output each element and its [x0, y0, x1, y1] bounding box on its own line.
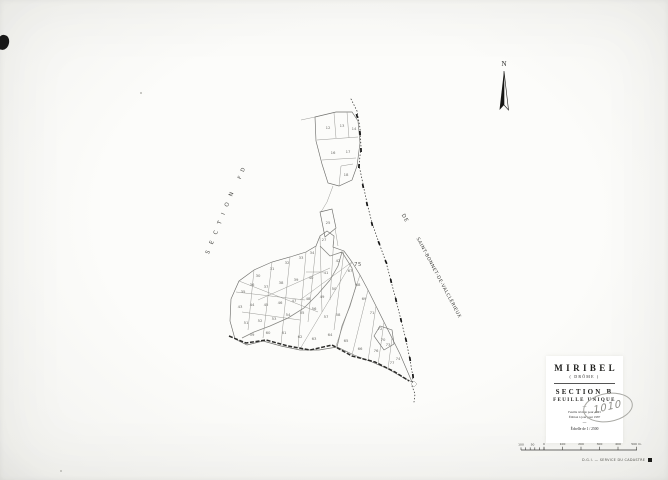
svg-text:49: 49 [320, 294, 325, 299]
svg-text:38: 38 [279, 280, 284, 285]
svg-text:34: 34 [310, 250, 315, 255]
svg-text:41: 41 [324, 270, 329, 275]
svg-text:48: 48 [306, 296, 311, 301]
svg-text:55: 55 [300, 310, 305, 315]
svg-text:43: 43 [238, 304, 243, 309]
svg-text:66: 66 [358, 346, 363, 351]
svg-text:14: 14 [352, 126, 357, 131]
north-label: N [501, 60, 506, 68]
svg-text:31: 31 [270, 266, 275, 271]
svg-text:59: 59 [250, 332, 255, 337]
svg-text:50: 50 [531, 443, 535, 447]
svg-text:25: 25 [326, 220, 331, 225]
parcel-geometry: 1213141617182527303132333435363738394041… [229, 99, 417, 402]
svg-text:36: 36 [250, 282, 255, 287]
north-arrow-icon [500, 71, 505, 110]
scale-note: Échelle de 1 / 2500 [546, 427, 623, 431]
svg-text:62: 62 [298, 334, 303, 339]
svg-text:33: 33 [299, 255, 304, 260]
handwritten-number: 1010 [593, 399, 623, 417]
cadastral-map-sheet: N 12131416171825273031323334353637383940… [0, 0, 668, 480]
svg-text:52: 52 [258, 318, 263, 323]
svg-text:17: 17 [346, 149, 351, 154]
print-credit-line: D.G.I. — SERVICE DU CADASTRE [582, 458, 652, 462]
svg-text:58: 58 [336, 312, 341, 317]
svg-text:12: 12 [326, 125, 331, 130]
svg-text:67: 67 [348, 268, 353, 273]
commune-name: MIRIBEL [546, 363, 623, 373]
svg-text:45: 45 [264, 302, 269, 307]
svg-text:56: 56 [312, 306, 317, 311]
svg-text:77: 77 [390, 360, 395, 365]
svg-text:70: 70 [381, 337, 386, 342]
svg-text:18: 18 [344, 172, 349, 177]
svg-text:44: 44 [250, 302, 255, 307]
svg-text:42: 42 [336, 258, 341, 263]
svg-text:100: 100 [518, 443, 524, 447]
print-credit-text: D.G.I. — SERVICE DU CADASTRE [582, 458, 645, 462]
svg-text:27: 27 [322, 237, 327, 242]
north-arrow: N [500, 60, 509, 110]
svg-text:51: 51 [244, 320, 249, 325]
svg-text:74: 74 [396, 356, 401, 361]
department-name: ( DRÔME ) [546, 374, 623, 379]
svg-text:500 m.: 500 m. [631, 442, 642, 446]
svg-text:57: 57 [324, 314, 329, 319]
svg-text:53: 53 [272, 316, 277, 321]
svg-text:46: 46 [278, 300, 283, 305]
divider [554, 383, 615, 384]
svg-text:13: 13 [340, 123, 345, 128]
svg-text:16: 16 [331, 150, 336, 155]
svg-text:76: 76 [374, 348, 379, 353]
svg-text:73: 73 [386, 342, 391, 347]
svg-text:75: 75 [354, 262, 362, 268]
svg-text:71: 71 [370, 310, 375, 315]
scale-bar: 100500100200300400500 m. [518, 442, 642, 450]
svg-text:30: 30 [256, 273, 261, 278]
svg-text:50: 50 [332, 286, 337, 291]
svg-text:0: 0 [543, 442, 545, 446]
svg-text:68: 68 [356, 282, 361, 287]
svg-text:39: 39 [294, 277, 299, 282]
svg-text:40: 40 [309, 275, 314, 280]
svg-text:64: 64 [328, 332, 333, 337]
svg-text:32: 32 [285, 260, 290, 265]
svg-text:60: 60 [266, 330, 271, 335]
print-registration-mark [648, 458, 652, 462]
svg-text:47: 47 [292, 298, 297, 303]
svg-text:69: 69 [362, 296, 367, 301]
svg-text:61: 61 [282, 330, 287, 335]
svg-text:35: 35 [241, 289, 246, 294]
svg-text:63: 63 [312, 336, 317, 341]
svg-text:72: 72 [378, 326, 383, 331]
svg-text:54: 54 [286, 312, 291, 317]
svg-text:65: 65 [344, 338, 349, 343]
svg-text:37: 37 [264, 284, 269, 289]
